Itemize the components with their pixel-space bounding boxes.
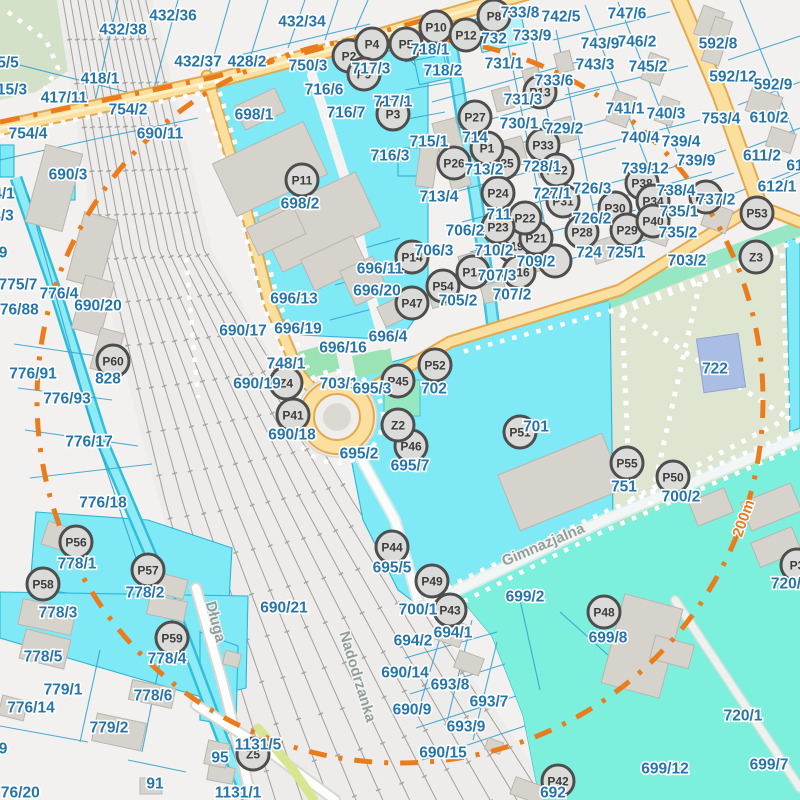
parcel-label: 699/12 [641,761,688,778]
parcel-label: 699/7 [750,757,789,774]
parcel-label: 779/2 [90,720,129,737]
parcel-label: 716/6 [305,82,344,99]
marker-label: P48 [593,606,615,620]
marker-label: P12 [455,29,477,43]
marker-label: P52 [424,359,446,373]
map-marker-p11[interactable]: P11 [286,164,318,196]
parcel-label: 432/36 [149,8,197,25]
parcel-label: 754/4 [9,126,48,143]
parcel-label: 699/2 [506,589,545,606]
parcel-label: 722 [702,361,728,378]
map-marker-p10[interactable]: P10 [420,11,452,43]
marker-label: P41 [282,409,304,423]
map-marker-p52[interactable]: P52 [419,349,451,381]
parcel-label: 718/1 [411,42,450,59]
map-marker-p44[interactable]: P44 [376,531,408,563]
parcel-label: 714 [462,130,488,147]
parcel-label: 690/21 [260,600,308,617]
marker-label: P57 [137,564,159,578]
parcel-label: 733/9 [513,28,552,45]
parcel-label: 611/2 [743,148,781,165]
parcel-label: 707/3 [478,268,517,285]
parcel-label: 711 [486,207,511,224]
parcel-label: 747/6 [608,6,647,23]
map-marker-p4[interactable]: P4 [356,28,388,60]
parcel-label: 751 [611,479,637,496]
parcel-label: 776/93 [43,391,91,408]
parcel-label: 726/3 [573,181,612,198]
marker-label: P29 [616,224,638,238]
marker-label: P33 [532,139,554,153]
map-marker-p47[interactable]: P47 [396,287,428,319]
parcel-label: 745/2 [629,59,668,76]
parcel-label: 731/3 [504,92,543,109]
parcel-label: 432/37 [174,54,221,71]
parcel-label: 728/1 [523,159,562,176]
map-marker-p12[interactable]: P12 [450,19,482,51]
parcel-label: 693/9 [447,719,486,736]
parcel-label: 743/9 [581,36,620,53]
parcel-label: 695/7 [391,458,430,475]
parcel-label: 707/2 [493,287,532,304]
marker-label: P50 [662,471,684,485]
parcel-label: 698/2 [281,196,320,213]
map-marker-p27[interactable]: P27 [459,101,491,133]
marker-label: Z4 [279,377,293,391]
parcel-label: 776/4 [40,286,79,303]
parcel-label: 739/12 [621,161,668,178]
map-marker-z3[interactable]: Z3 [740,241,772,273]
marker-label: P55 [616,457,638,471]
parcel-label: 690/19 [233,376,281,393]
parcel-label: 726/2 [573,211,612,228]
parcel-label: 715/1 [410,134,449,151]
parcel-label: 738/4 [657,183,696,200]
marker-label: P43 [439,604,461,618]
parcel-label: 4/1 [0,186,15,203]
map-marker-z2[interactable]: Z2 [382,409,414,441]
map-marker-p49[interactable]: P49 [416,565,448,597]
marker-label: P49 [421,575,443,589]
map-marker-p43[interactable]: P43 [434,594,466,626]
parcel-label: 779/1 [44,682,83,699]
marker-label: P24 [487,187,509,201]
parcel-label: 592/12 [709,69,756,86]
parcel-label: 692 [540,785,566,800]
parcel-label: 690/9 [393,702,432,719]
parcel-label: 776/17 [65,434,112,451]
parcel-label: 698/1 [235,107,274,124]
parcel-label: 690/14 [381,665,429,682]
marker-label: P56 [65,536,87,550]
parcel-label: 776/88 [0,302,39,319]
parcel-label: 709/2 [517,254,556,271]
parcel-label: 696/4 [369,329,408,346]
parcel-label: 5/5 [0,55,19,72]
marker-label: P28 [571,226,593,240]
map-marker-p56[interactable]: P56 [60,526,92,558]
map-marker-p57[interactable]: P57 [132,554,164,586]
parcel-label: 716/7 [327,105,366,122]
map-marker-p59[interactable]: P59 [156,622,188,654]
marker-label: P27 [464,111,486,125]
parcel-label: 8/3 [0,208,14,225]
parcel-label: 695/3 [353,381,392,398]
parcel-label: 703/2 [668,253,707,270]
parcel-label: 729/2 [545,121,584,138]
parcel-label: 610/2 [750,110,789,127]
parcel-label: 724 [576,245,602,262]
parcel-label: 732 [481,31,507,48]
parcel-label: 696/16 [319,340,367,357]
marker-label: P8 [487,10,502,24]
map-marker-p24[interactable]: P24 [482,177,514,209]
parcel-label: 740/3 [647,106,686,123]
parcel-label: 748/1 [267,356,306,373]
parcel-label: 693/8 [431,677,470,694]
parcel-label: 742/5 [542,9,581,26]
marker-label: P46 [400,440,422,454]
parcel-label: 690/18 [268,427,316,444]
parcel-label: 696/13 [270,291,318,308]
parcel-label: 778/3 [39,605,78,622]
parcel-label: 735/1 [660,204,699,221]
parcel-label: 690/15 [419,745,467,762]
marker-label: Z3 [749,251,763,265]
parcel-label: 695/2 [340,446,379,463]
parcel-label: 717/3 [352,61,391,78]
parcel-label: 696/19 [274,321,322,338]
parcel-label: 696/11 [357,261,404,278]
parcel-label: 713/4 [420,189,459,206]
parcel-label: 700/2 [662,489,701,506]
parcel-label: 776/18 [79,495,127,512]
parcel-label: 693/7 [470,694,509,711]
parcel-label: 776/91 [9,366,57,383]
parcel-label: 776/14 [7,700,55,717]
parcel-label: 778/4 [148,651,187,668]
parcel-label: 694/1 [434,625,473,642]
parcel-label: 9 [0,741,8,758]
parcel-label: 718/2 [424,63,463,80]
parcel-label: 95 [211,750,229,767]
parcel-label: 733/8 [501,5,540,22]
parcel-label: 592/8 [699,36,738,53]
parcel-label: 741/1 [606,101,645,118]
parcel-label: 700/1 [399,602,438,619]
cadastral-map[interactable]: P2P4P5P8P10P12P9P3P11P13P27P33P26P25P1P3… [0,0,800,800]
parcel-label: 690/20 [74,298,121,315]
parcel-label: 428/2 [228,54,267,71]
marker-label: P58 [32,578,54,592]
parcel-label: 710/2 [475,243,514,260]
parcel-label: 727/1 [533,186,572,203]
marker-label: P54 [432,280,454,294]
parcel-label: 706/3 [415,243,454,260]
parcel-label: 720/1 [724,708,763,725]
parcel-label: 432/38 [99,22,147,39]
parcel-label: 776/20 [0,785,40,800]
parcel-label: 778/6 [134,688,173,705]
marker-label: P11 [292,174,313,188]
parcel-label: 717/1 [374,94,413,111]
parcel-label: 417/11 [41,90,88,107]
parcel-label: 720/ [771,576,800,593]
parcel-label: 725/1 [607,245,646,262]
parcel-label: 696/20 [353,283,400,300]
parcel-label: 753/4 [702,111,741,128]
marker-label: P4 [365,38,380,52]
parcel-label: 706/2 [446,223,485,240]
parcel-label: 702 [421,381,447,398]
parcel-label: 61 [786,158,800,175]
parcel-label: 15/3 [0,82,27,99]
marker-label: P3 [790,559,800,573]
parcel-label: 778/5 [24,649,63,666]
parcel-label: 716/3 [371,148,410,165]
parcel-label: 592/9 [754,77,793,94]
parcel-label: 754/2 [109,102,148,119]
map-marker-p53[interactable]: P53 [741,197,773,229]
marker-label: P53 [746,207,768,221]
parcel-label: 828 [95,371,121,388]
map-marker-p55[interactable]: P55 [611,447,643,479]
parcel-label: 432/34 [278,14,326,31]
parcel-label: 694/2 [394,633,433,650]
parcel-label: 750/3 [289,58,328,75]
parcel-label: 733/6 [535,73,574,90]
parcel-label: 739/9 [677,153,716,170]
marker-label: Z2 [391,419,405,433]
marker-label: P47 [401,297,423,311]
marker-label: P26 [443,157,465,171]
parcel-label: 778/2 [126,585,165,602]
parcel-label: 695/5 [373,560,412,577]
parcel-label: 701 [523,419,549,436]
parcel-label: 735/2 [659,225,698,242]
parcel-label: 1131/1 [215,785,262,800]
parcel-label: 740/4 [621,130,660,147]
map-marker-p48[interactable]: P48 [588,596,620,628]
marker-label: P59 [161,632,183,646]
parcel-label: 730/1 [500,116,539,133]
parcel-label: 418/1 [81,71,120,88]
parcel-label: 743/3 [576,57,615,74]
parcel-label: 690/11 [137,126,184,143]
marker-label: P22 [514,212,536,226]
marker-label: P44 [381,541,403,555]
parcel-label: 778/1 [58,556,97,573]
parcel-label: 705/2 [439,293,478,310]
parcel-label: 731/1 [485,56,524,73]
parcel-label: 746/2 [618,34,657,51]
marker-label: P60 [102,355,124,369]
parcel-label: 737/2 [697,192,736,209]
parcel-label: 9 [0,245,8,262]
parcel-label: 713/2 [465,162,504,179]
parcel-label: 690/17 [219,323,266,340]
parcel-label: 699/8 [589,630,628,647]
parcel-label: 612/1 [758,179,797,196]
parcel-label: 739/4 [662,134,701,151]
parcel-label: 1131/5 [235,737,282,754]
parcel-label: 690/3 [49,167,88,184]
map-marker-p58[interactable]: P58 [27,568,59,600]
parcel-label: 775/7 [0,277,37,294]
marker-label: P10 [425,21,447,35]
parcel-label: 91 [146,776,164,793]
